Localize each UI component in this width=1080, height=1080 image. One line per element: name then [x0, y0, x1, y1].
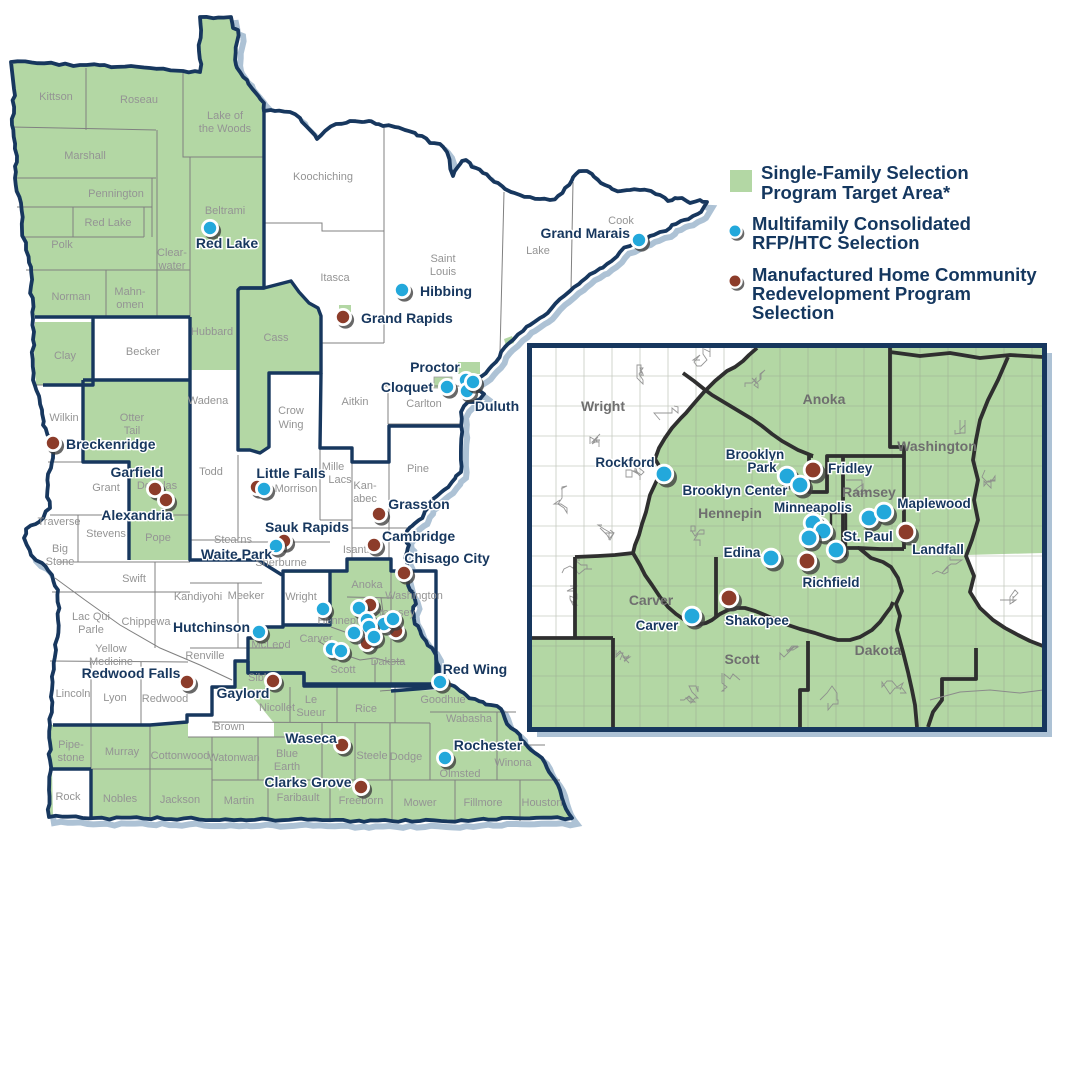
svg-text:Alexandria: Alexandria	[101, 507, 173, 523]
svg-text:Duluth: Duluth	[475, 398, 519, 414]
svg-text:Martin: Martin	[224, 795, 255, 807]
svg-text:Program Target Area*: Program Target Area*	[761, 182, 951, 203]
svg-text:Edina: Edina	[724, 545, 761, 560]
svg-text:Selection: Selection	[752, 302, 834, 323]
svg-text:Ramsey: Ramsey	[842, 484, 896, 500]
svg-text:Todd: Todd	[199, 466, 223, 478]
svg-text:Kittson: Kittson	[39, 91, 73, 103]
svg-text:Redevelopment Program: Redevelopment Program	[752, 283, 971, 304]
svg-text:Brown: Brown	[213, 721, 244, 733]
svg-text:Chisago City: Chisago City	[404, 550, 490, 566]
svg-text:Koochiching: Koochiching	[293, 171, 353, 183]
svg-text:St. Paul: St. Paul	[843, 529, 893, 544]
svg-text:Waite Park: Waite Park	[201, 546, 272, 562]
svg-text:the Woods: the Woods	[199, 123, 252, 135]
svg-text:Louis: Louis	[430, 266, 457, 278]
svg-text:Sueur: Sueur	[296, 707, 326, 719]
svg-text:Houston: Houston	[522, 797, 563, 809]
svg-text:Clarks Grove: Clarks Grove	[264, 774, 351, 790]
svg-text:Red Wing: Red Wing	[443, 661, 507, 677]
svg-text:Garfield: Garfield	[111, 464, 164, 480]
svg-text:Roseau: Roseau	[120, 94, 158, 106]
svg-text:stone: stone	[58, 752, 85, 764]
svg-text:Renville: Renville	[185, 650, 224, 662]
svg-text:Wilkin: Wilkin	[49, 412, 78, 424]
svg-text:Becker: Becker	[126, 346, 161, 358]
svg-text:water: water	[158, 260, 186, 272]
svg-text:Landfall: Landfall	[912, 542, 964, 557]
svg-text:Parle: Parle	[78, 624, 104, 636]
svg-text:Dodge: Dodge	[390, 751, 422, 763]
svg-text:Cass: Cass	[263, 332, 289, 344]
svg-text:Richfield: Richfield	[802, 575, 859, 590]
svg-text:Rochester: Rochester	[454, 737, 523, 753]
svg-text:Carver: Carver	[629, 592, 674, 608]
svg-text:Fridley: Fridley	[828, 461, 873, 476]
svg-text:Cloquet: Cloquet	[381, 379, 433, 395]
svg-text:Nobles: Nobles	[103, 793, 138, 805]
svg-text:Clear-: Clear-	[157, 247, 187, 259]
svg-text:Hubbard: Hubbard	[191, 326, 233, 338]
svg-text:Redwood: Redwood	[142, 693, 188, 705]
svg-text:Wadena: Wadena	[188, 395, 229, 407]
svg-text:Cambridge: Cambridge	[382, 528, 455, 544]
svg-text:Sauk Rapids: Sauk Rapids	[265, 519, 349, 535]
svg-text:Stevens: Stevens	[86, 528, 126, 540]
svg-text:Crow: Crow	[278, 405, 304, 417]
svg-text:Murray: Murray	[105, 746, 140, 758]
svg-text:Earth: Earth	[274, 761, 300, 773]
svg-text:Nicollet: Nicollet	[259, 702, 295, 714]
svg-text:Red Lake: Red Lake	[84, 217, 131, 229]
svg-text:Redwood Falls: Redwood Falls	[82, 665, 181, 681]
svg-text:Lac Qui: Lac Qui	[72, 611, 110, 623]
svg-text:Breckenridge: Breckenridge	[66, 436, 156, 452]
svg-text:Saint: Saint	[430, 253, 455, 265]
svg-text:Traverse: Traverse	[38, 516, 81, 528]
svg-text:Yellow: Yellow	[95, 643, 126, 655]
svg-text:Rockford: Rockford	[595, 455, 654, 470]
svg-text:Beltrami: Beltrami	[205, 205, 245, 217]
svg-text:Grant: Grant	[92, 482, 120, 494]
svg-text:Lake: Lake	[526, 245, 550, 257]
svg-text:Clay: Clay	[54, 350, 77, 362]
svg-text:Chippewa: Chippewa	[122, 616, 172, 628]
svg-text:Hutchinson: Hutchinson	[173, 619, 250, 635]
svg-text:omen: omen	[116, 299, 144, 311]
svg-text:Grand Marais: Grand Marais	[541, 225, 631, 241]
svg-text:Wing: Wing	[278, 419, 303, 431]
svg-text:Manufactured Home Community: Manufactured Home Community	[752, 264, 1037, 285]
svg-text:Pipe-: Pipe-	[58, 739, 84, 751]
svg-text:Grasston: Grasston	[388, 496, 449, 512]
svg-text:Olmsted: Olmsted	[440, 768, 481, 780]
svg-text:Cottonwood: Cottonwood	[151, 750, 210, 762]
svg-text:Waseca: Waseca	[285, 730, 337, 746]
svg-text:Jackson: Jackson	[160, 794, 200, 806]
svg-text:Faribault: Faribault	[277, 792, 320, 804]
svg-text:Mahn-: Mahn-	[114, 286, 146, 298]
svg-text:Single-Family Selection: Single-Family Selection	[761, 162, 969, 183]
svg-text:Anoka: Anoka	[803, 391, 846, 407]
svg-text:Hennepin: Hennepin	[698, 505, 762, 521]
svg-text:Stone: Stone	[46, 556, 75, 568]
svg-text:Mower: Mower	[403, 797, 436, 809]
svg-text:Red Lake: Red Lake	[196, 235, 258, 251]
svg-text:Otter: Otter	[120, 412, 145, 424]
svg-text:abec: abec	[353, 493, 377, 505]
svg-text:Proctor: Proctor	[410, 359, 460, 375]
svg-text:Pope: Pope	[145, 532, 171, 544]
svg-text:Gaylord: Gaylord	[217, 685, 270, 701]
svg-text:Stearns: Stearns	[214, 534, 252, 546]
svg-text:Brooklyn Center: Brooklyn Center	[682, 483, 788, 498]
svg-text:RFP/HTC Selection: RFP/HTC Selection	[752, 232, 920, 253]
svg-text:Washington: Washington	[385, 590, 443, 602]
svg-text:Dakota: Dakota	[371, 656, 407, 668]
svg-text:Hibbing: Hibbing	[420, 283, 472, 299]
svg-text:Minneapolis: Minneapolis	[774, 500, 852, 515]
svg-text:Shakopee: Shakopee	[725, 613, 789, 628]
svg-text:Norman: Norman	[51, 291, 90, 303]
svg-text:Le: Le	[305, 694, 317, 706]
svg-text:Carlton: Carlton	[406, 398, 441, 410]
svg-text:Fillmore: Fillmore	[463, 797, 502, 809]
svg-text:Lacs: Lacs	[328, 474, 352, 486]
svg-text:Rice: Rice	[355, 703, 377, 715]
svg-text:Lake of: Lake of	[207, 110, 244, 122]
svg-text:Aitkin: Aitkin	[342, 396, 369, 408]
svg-text:Watonwan: Watonwan	[208, 752, 260, 764]
svg-text:Wright: Wright	[581, 398, 625, 414]
svg-text:Washington: Washington	[897, 438, 977, 454]
svg-text:Steele: Steele	[356, 750, 387, 762]
svg-text:Goodhue: Goodhue	[420, 694, 465, 706]
svg-text:Wabasha: Wabasha	[446, 713, 493, 725]
svg-text:Kan-: Kan-	[353, 480, 377, 492]
svg-text:Polk: Polk	[51, 239, 73, 251]
svg-text:Pennington: Pennington	[88, 188, 144, 200]
svg-text:Little Falls: Little Falls	[256, 465, 325, 481]
svg-text:Rock: Rock	[55, 791, 81, 803]
svg-text:Winona: Winona	[494, 757, 532, 769]
svg-text:Lincoln: Lincoln	[56, 688, 91, 700]
svg-text:Grand Rapids: Grand Rapids	[361, 310, 453, 326]
svg-text:Park: Park	[747, 460, 777, 475]
svg-text:Big: Big	[52, 543, 68, 555]
svg-text:Itasca: Itasca	[320, 272, 350, 284]
svg-text:Wright: Wright	[285, 591, 317, 603]
svg-text:Carver: Carver	[636, 618, 680, 633]
svg-text:Maplewood: Maplewood	[897, 496, 971, 511]
svg-text:Swift: Swift	[122, 573, 146, 585]
svg-text:Anoka: Anoka	[351, 579, 383, 591]
svg-text:Marshall: Marshall	[64, 150, 106, 162]
svg-text:Morrison: Morrison	[275, 483, 318, 495]
svg-text:Meeker: Meeker	[228, 590, 265, 602]
svg-text:Kandiyohi: Kandiyohi	[174, 591, 222, 603]
svg-text:Pine: Pine	[407, 463, 429, 475]
svg-text:Multifamily Consolidated: Multifamily Consolidated	[752, 213, 971, 234]
svg-text:Lyon: Lyon	[103, 692, 126, 704]
svg-text:Scott: Scott	[330, 664, 355, 676]
svg-text:Blue: Blue	[276, 748, 298, 760]
svg-text:Scott: Scott	[725, 651, 760, 667]
svg-text:Dakota: Dakota	[855, 642, 902, 658]
